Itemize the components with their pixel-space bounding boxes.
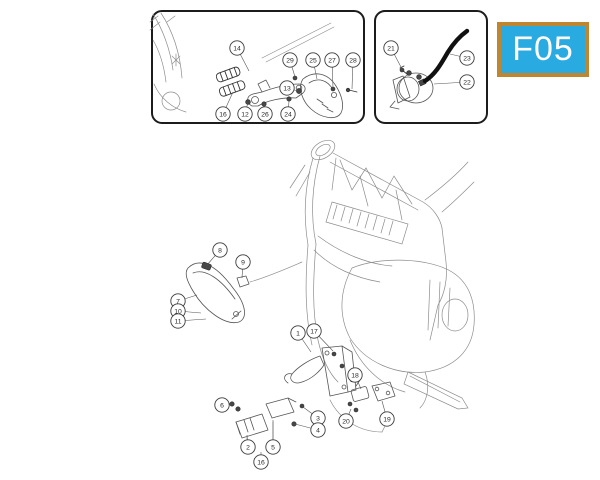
svg-text:4: 4 [316,427,320,434]
svg-text:21: 21 [387,45,395,52]
callout-3[interactable]: 3 [303,407,325,425]
svg-text:28: 28 [349,57,357,64]
page-code-badge: F05 [497,22,589,77]
svg-text:18: 18 [351,372,359,379]
ecu-cluster-art [230,398,304,444]
svg-text:22: 22 [463,79,471,86]
lever-bracket-art [285,346,356,396]
inset-solenoid-panel [375,11,487,123]
svg-text:27: 27 [328,57,336,64]
svg-text:9: 9 [241,259,245,266]
callout-16[interactable]: 16 [254,452,268,469]
svg-text:16: 16 [257,459,265,466]
frame-engine-art [290,136,474,432]
svg-text:1: 1 [296,330,300,337]
callout-9[interactable]: 9 [236,255,250,278]
callout-18[interactable]: 18 [348,368,362,389]
svg-text:19: 19 [383,416,391,423]
callout-6[interactable]: 6 [215,398,231,412]
callout-11[interactable]: 11 [171,314,206,328]
callout-8[interactable]: 8 [207,243,227,265]
svg-text:24: 24 [284,111,292,118]
svg-text:11: 11 [174,318,181,325]
parts-catalog-page: 1429252728131612262421232289710111171862… [0,0,600,480]
svg-text:23: 23 [463,55,471,62]
page-code-label: F05 [512,30,574,69]
svg-text:8: 8 [218,247,222,254]
svg-text:14: 14 [233,45,241,52]
svg-text:5: 5 [271,444,275,451]
svg-text:16: 16 [219,111,227,118]
callout-4[interactable]: 4 [295,423,325,437]
callout-19[interactable]: 19 [380,401,394,426]
side-panel-art [186,262,302,323]
svg-text:2: 2 [246,444,250,451]
svg-text:3: 3 [316,415,320,422]
svg-text:13: 13 [283,85,291,92]
svg-text:12: 12 [241,111,249,118]
svg-text:6: 6 [220,402,224,409]
callout-20[interactable]: 20 [339,409,353,428]
callout-5[interactable]: 5 [266,420,280,454]
svg-text:25: 25 [309,57,317,64]
svg-text:20: 20 [342,418,350,425]
svg-text:26: 26 [261,111,269,118]
svg-text:17: 17 [310,328,318,335]
svg-text:29: 29 [286,57,294,64]
